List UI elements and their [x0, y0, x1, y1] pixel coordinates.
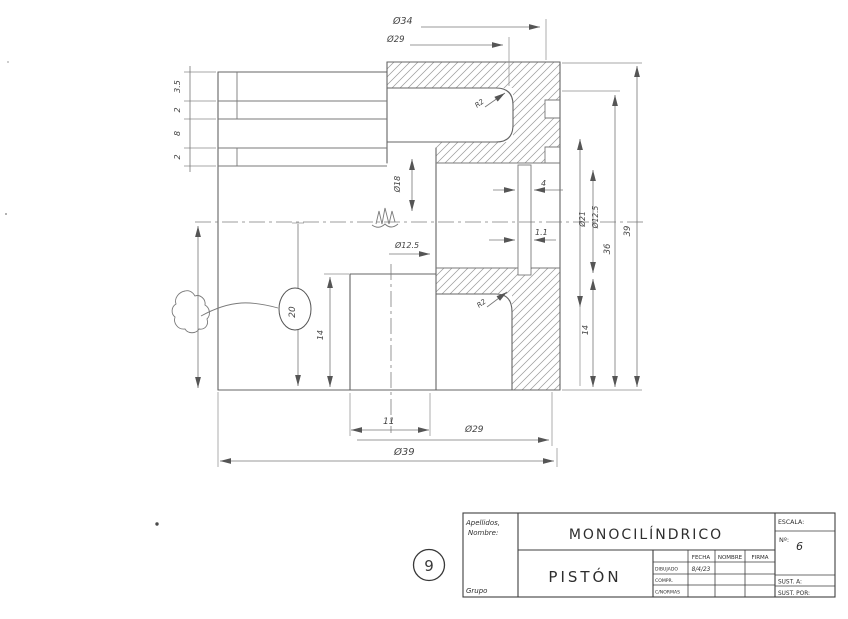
dim-label: 36: [603, 243, 613, 254]
nombre-label: Nombre:: [468, 529, 498, 537]
dim-label: 14: [316, 330, 325, 340]
scanned-technical-drawing: Ø34 Ø29 3.5 2 8 2 Ø18 Ø12.5 4 1.1: [0, 0, 848, 619]
dim-cloud: [172, 226, 278, 388]
sust-a-label: SUST. A:: [778, 580, 802, 586]
sust-por-label: SUST. POR:: [778, 591, 810, 597]
dim-39: 39: [562, 63, 642, 390]
dim-label: 14: [581, 325, 590, 335]
combustion-bowl-cutout: [387, 88, 513, 142]
sheet-num-label: Nº:: [779, 536, 789, 544]
skirt-opening: [350, 274, 436, 390]
ring-groove-lines: [218, 101, 387, 166]
fecha-value: 8/4/23: [692, 567, 711, 573]
ring-groove-notch-2: [545, 147, 560, 163]
stray-marks: [5, 61, 159, 526]
dim-dia21: Ø21: [578, 139, 587, 386]
dim-label: 20: [288, 306, 298, 318]
dim-dia125-pin: Ø12.5: [591, 170, 600, 273]
col-header-firma: FIRMA: [751, 555, 768, 561]
dim-label: Ø34: [392, 16, 413, 27]
correction-squiggle: [372, 208, 398, 227]
dim-dia125-bore: Ø12.5: [389, 240, 430, 254]
dim-dia34: Ø34: [392, 16, 546, 60]
row-label-cnormas: C/NORMAS: [655, 590, 680, 596]
dim-label: Ø39: [393, 446, 415, 458]
dim-20-circled: 20: [279, 223, 311, 386]
dim-label: 11: [383, 417, 394, 427]
apellidos-label: Apellidos,: [465, 519, 500, 527]
skirt-inner-corner-cutout: [436, 294, 512, 390]
sheet-number-badge: 9: [414, 550, 445, 581]
escala-label: ESCALA:: [778, 519, 804, 526]
dim-label: Ø12.5: [394, 240, 419, 250]
dim-label: 39: [623, 226, 633, 237]
piston-drawing-svg: Ø34 Ø29 3.5 2 8 2 Ø18 Ø12.5 4 1.1: [0, 0, 848, 619]
sheet-num-value: 6: [796, 540, 803, 553]
dim-label: 3.5: [173, 80, 182, 93]
title-block: Apellidos, Nombre: Grupo MONOCILÍNDRICO …: [463, 513, 835, 597]
col-header-nombre: NOMBRE: [718, 555, 743, 561]
ring-groove-notch-1: [545, 100, 560, 118]
drawing-title: MONOCILÍNDRICO: [569, 526, 723, 543]
dim-label: Ø29: [386, 34, 405, 45]
dim-11: 11: [350, 393, 430, 436]
part-name: PISTÓN: [548, 567, 621, 586]
row-label-compr: COMPR.: [655, 578, 673, 584]
dim-label: 8: [173, 131, 182, 136]
dim-label: 2: [173, 154, 182, 159]
grupo-label: Grupo: [466, 587, 487, 595]
row-label-dibujado: DIBUJADO: [655, 567, 678, 573]
dim-ring-chain: 3.5 2 8 2: [173, 66, 216, 172]
dim-label: 2: [173, 107, 182, 112]
dim-dia18: Ø18: [392, 159, 412, 211]
col-header-fecha: FECHA: [692, 555, 711, 561]
dim-36: 36: [562, 91, 620, 387]
dim-label: 4: [541, 179, 546, 188]
dim-label: Ø21: [578, 211, 587, 227]
dim-label: Ø29: [464, 424, 484, 435]
section-hatching: [387, 62, 560, 390]
dim-14-right: 14: [581, 279, 593, 387]
dim-label: 1.1: [535, 228, 548, 237]
revision-cloud: [172, 291, 209, 333]
dim-label: Ø18: [392, 176, 402, 193]
dim-dia39: Ø39: [218, 392, 557, 467]
dim-label: Ø12.5: [591, 205, 600, 229]
dim-14-left: 14: [316, 274, 349, 387]
sheet-number: 9: [424, 557, 434, 575]
pin-bore-slot-fill: [518, 165, 531, 275]
cloud-leader: [201, 303, 278, 316]
